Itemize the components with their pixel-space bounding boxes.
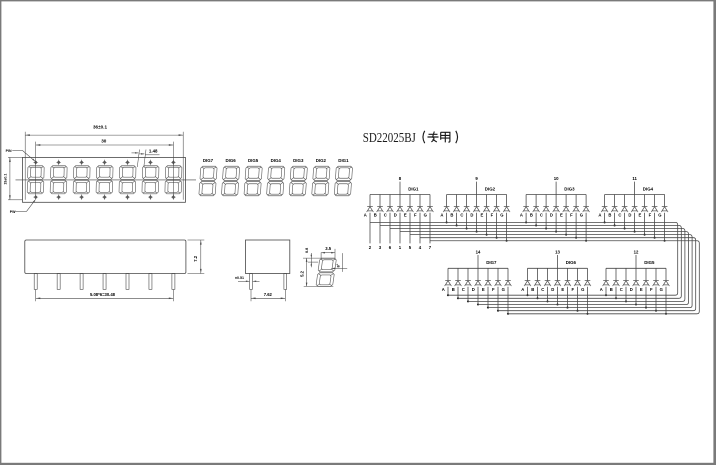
svg-text:PW: PW (10, 210, 16, 214)
svg-text:DIG5: DIG5 (248, 158, 259, 163)
svg-text:C: C (460, 213, 463, 218)
svg-text:DIG1: DIG1 (338, 158, 349, 163)
svg-text:B: B (530, 213, 533, 218)
svg-text:13: 13 (555, 250, 560, 255)
svg-text:F: F (491, 213, 494, 218)
svg-text:DIG6: DIG6 (225, 158, 236, 163)
svg-text:DIG3: DIG3 (293, 158, 304, 163)
svg-text:1.48: 1.48 (149, 148, 158, 153)
svg-text:8°: 8° (335, 263, 340, 267)
svg-text:7.2: 7.2 (193, 255, 198, 261)
svg-text:A: A (442, 287, 445, 292)
svg-text:C: C (462, 287, 465, 292)
svg-text:G: G (502, 287, 505, 292)
svg-text:G: G (580, 213, 583, 218)
svg-text:A: A (521, 287, 524, 292)
svg-text:36±0.1: 36±0.1 (93, 125, 107, 130)
svg-text:B: B (608, 213, 611, 218)
svg-text:E: E (404, 213, 407, 218)
svg-text:SD22025BJ: SD22025BJ (363, 131, 416, 146)
svg-text:DIG4: DIG4 (643, 187, 654, 192)
svg-text:DIG5: DIG5 (644, 260, 655, 265)
svg-text:DIG1: DIG1 (408, 187, 419, 192)
svg-text:F: F (492, 287, 495, 292)
svg-text:A: A (440, 213, 443, 218)
svg-text:C: C (541, 287, 544, 292)
svg-text:D: D (630, 287, 633, 292)
svg-text:G: G (660, 287, 663, 292)
svg-text:C: C (540, 213, 543, 218)
svg-text:B: B (452, 287, 455, 292)
svg-text:B: B (531, 287, 534, 292)
svg-text:F: F (649, 213, 652, 218)
svg-text:19±0.1: 19±0.1 (3, 174, 7, 185)
svg-text:DIG6: DIG6 (566, 260, 577, 265)
svg-text:3.5: 3.5 (325, 246, 331, 251)
svg-text:G: G (581, 287, 584, 292)
svg-text:7.62: 7.62 (264, 292, 273, 297)
svg-text:11: 11 (632, 176, 637, 181)
svg-text:0.8: 0.8 (305, 248, 309, 253)
svg-text:A: A (364, 213, 367, 218)
svg-text:±0.51: ±0.51 (235, 276, 244, 280)
svg-text:F: F (414, 213, 417, 218)
svg-text:E: E (481, 213, 484, 218)
svg-text:5.08*6=30.48: 5.08*6=30.48 (90, 292, 116, 297)
svg-text:D: D (628, 213, 631, 218)
svg-text:B: B (450, 213, 453, 218)
svg-text:E: E (561, 287, 564, 292)
svg-text:C: C (620, 287, 623, 292)
svg-text:A: A (600, 287, 603, 292)
svg-text:D: D (470, 213, 473, 218)
svg-text:12: 12 (634, 250, 639, 255)
svg-text:F: F (572, 287, 575, 292)
svg-text:A: A (598, 213, 601, 218)
svg-text:DIG3: DIG3 (564, 187, 575, 192)
svg-text:E: E (639, 213, 642, 218)
svg-text:F: F (650, 287, 653, 292)
svg-text:G: G (658, 213, 661, 218)
svg-text:DIG7: DIG7 (203, 158, 214, 163)
svg-text:C: C (384, 213, 387, 218)
svg-text:D: D (472, 287, 475, 292)
svg-text:DIG2: DIG2 (485, 187, 496, 192)
svg-text:DIG4: DIG4 (271, 158, 282, 163)
svg-text:D: D (550, 213, 553, 218)
svg-text:30: 30 (101, 139, 107, 144)
svg-text:14: 14 (476, 250, 481, 255)
svg-text:E: E (640, 287, 643, 292)
svg-text:B: B (374, 213, 377, 218)
svg-text:G: G (424, 213, 427, 218)
svg-text:5.2: 5.2 (299, 270, 304, 276)
svg-text:B: B (610, 287, 613, 292)
svg-text:E: E (560, 213, 563, 218)
svg-text:DIG2: DIG2 (316, 158, 327, 163)
svg-text:A: A (520, 213, 523, 218)
svg-text:D: D (394, 213, 397, 218)
svg-text:G: G (500, 213, 503, 218)
svg-text:E: E (482, 287, 485, 292)
svg-text:F: F (570, 213, 573, 218)
svg-text:DIG7: DIG7 (486, 260, 497, 265)
svg-text:C: C (618, 213, 621, 218)
svg-text:PIN: PIN (6, 149, 12, 153)
svg-text:10: 10 (554, 176, 559, 181)
svg-text:D: D (551, 287, 554, 292)
